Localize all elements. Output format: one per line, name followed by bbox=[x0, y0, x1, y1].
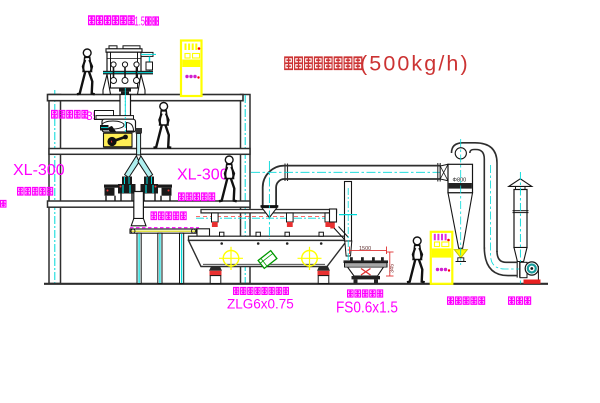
svg-text:1500: 1500 bbox=[359, 246, 371, 252]
svg-text:XL-300: XL-300 bbox=[177, 167, 229, 184]
svg-text:FS0.6x1.5: FS0.6x1.5 bbox=[336, 300, 398, 317]
svg-text:Φ800: Φ800 bbox=[453, 178, 467, 184]
svg-text:XL-300: XL-300 bbox=[13, 162, 65, 179]
svg-text:345: 345 bbox=[390, 264, 396, 273]
svg-text:1.5: 1.5 bbox=[135, 14, 146, 29]
svg-text:(500kg/h): (500kg/h) bbox=[360, 52, 470, 76]
svg-text:ZLG6x0.75: ZLG6x0.75 bbox=[227, 297, 294, 312]
